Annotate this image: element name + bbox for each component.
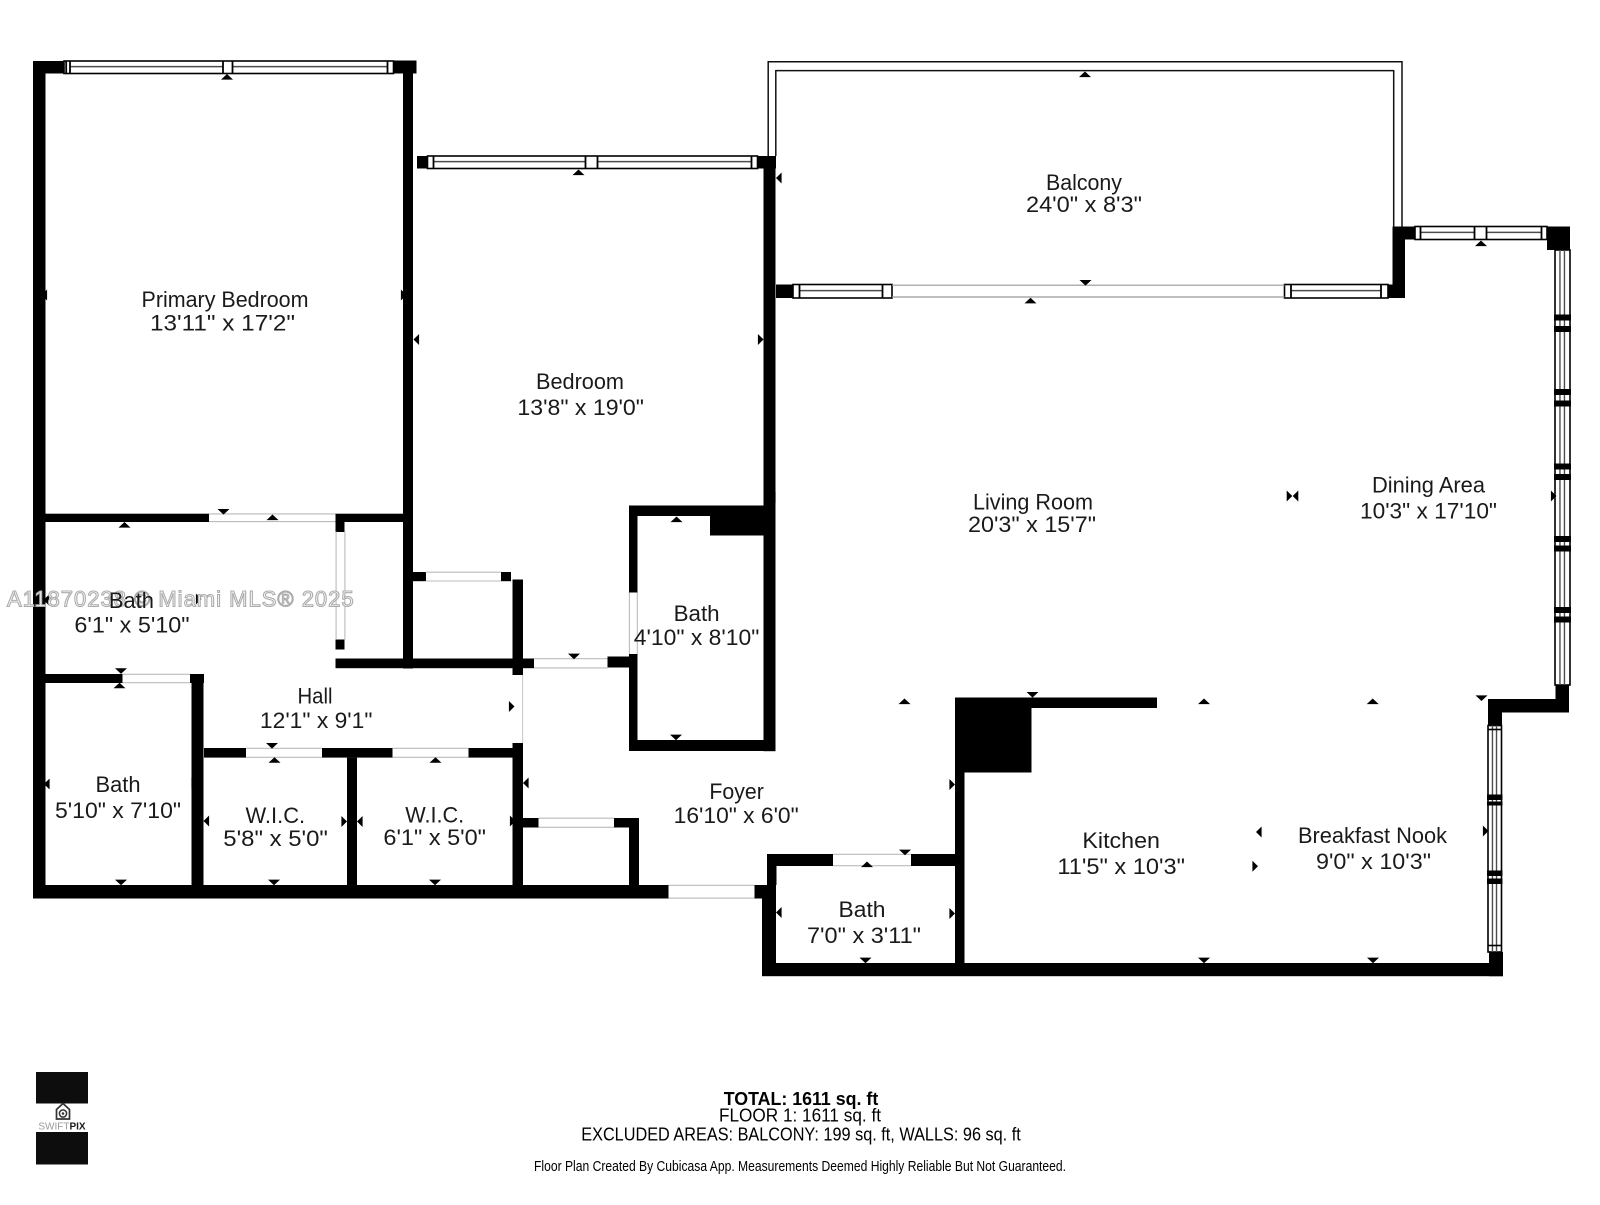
- svg-text:Breakfast Nook: Breakfast Nook: [1298, 823, 1448, 848]
- svg-text:13'8" x 19'0": 13'8" x 19'0": [517, 395, 644, 420]
- svg-text:W.I.C.: W.I.C.: [245, 803, 305, 828]
- svg-text:Bath: Bath: [674, 601, 720, 626]
- svg-text:4'10" x 8'10": 4'10" x 8'10": [634, 625, 760, 650]
- svg-text:5'8" x 5'0": 5'8" x 5'0": [223, 826, 328, 851]
- svg-text:5'10" x 7'10": 5'10" x 7'10": [55, 798, 181, 823]
- svg-text:Bath: Bath: [839, 897, 886, 922]
- svg-text:6'1" x 5'0": 6'1" x 5'0": [383, 825, 486, 850]
- svg-text:Kitchen: Kitchen: [1082, 828, 1160, 853]
- svg-text:Bath: Bath: [96, 772, 141, 797]
- svg-text:Living Room: Living Room: [973, 490, 1093, 515]
- svg-text:13'11" x 17'2": 13'11" x 17'2": [150, 311, 295, 336]
- svg-text:20'3" x 15'7": 20'3" x 15'7": [968, 512, 1096, 537]
- svg-text:Bath: Bath: [109, 588, 154, 613]
- svg-text:Floor Plan Created By Cubicasa: Floor Plan Created By Cubicasa App. Meas…: [534, 1159, 1066, 1175]
- svg-text:SWIFTPIX: SWIFTPIX: [38, 1122, 86, 1133]
- svg-text:12'1" x 9'1": 12'1" x 9'1": [260, 708, 373, 733]
- svg-text:7'0" x 3'11": 7'0" x 3'11": [807, 923, 921, 948]
- svg-text:EXCLUDED AREAS: BALCONY: 199 s: EXCLUDED AREAS: BALCONY: 199 sq. ft, WAL…: [581, 1124, 1021, 1145]
- svg-text:Dining Area: Dining Area: [1372, 473, 1486, 498]
- svg-text:FLOOR 1: 1611 sq. ft: FLOOR 1: 1611 sq. ft: [719, 1105, 881, 1126]
- svg-text:11'5" x 10'3": 11'5" x 10'3": [1057, 854, 1185, 879]
- svg-text:Primary Bedroom: Primary Bedroom: [142, 287, 309, 312]
- svg-text:A11870238 © Miami MLS® 2025: A11870238 © Miami MLS® 2025: [7, 587, 355, 612]
- svg-text:Hall: Hall: [298, 683, 333, 708]
- svg-text:Foyer: Foyer: [709, 779, 763, 804]
- svg-text:W.I.C.: W.I.C.: [405, 802, 464, 827]
- svg-text:9'0" x 10'3": 9'0" x 10'3": [1316, 849, 1431, 874]
- svg-text:Bedroom: Bedroom: [536, 369, 624, 394]
- svg-text:10'3" x 17'10": 10'3" x 17'10": [1360, 499, 1497, 524]
- svg-text:24'0" x 8'3": 24'0" x 8'3": [1026, 192, 1142, 217]
- svg-text:6'1" x 5'10": 6'1" x 5'10": [74, 613, 189, 638]
- svg-text:16'10" x 6'0": 16'10" x 6'0": [674, 803, 799, 828]
